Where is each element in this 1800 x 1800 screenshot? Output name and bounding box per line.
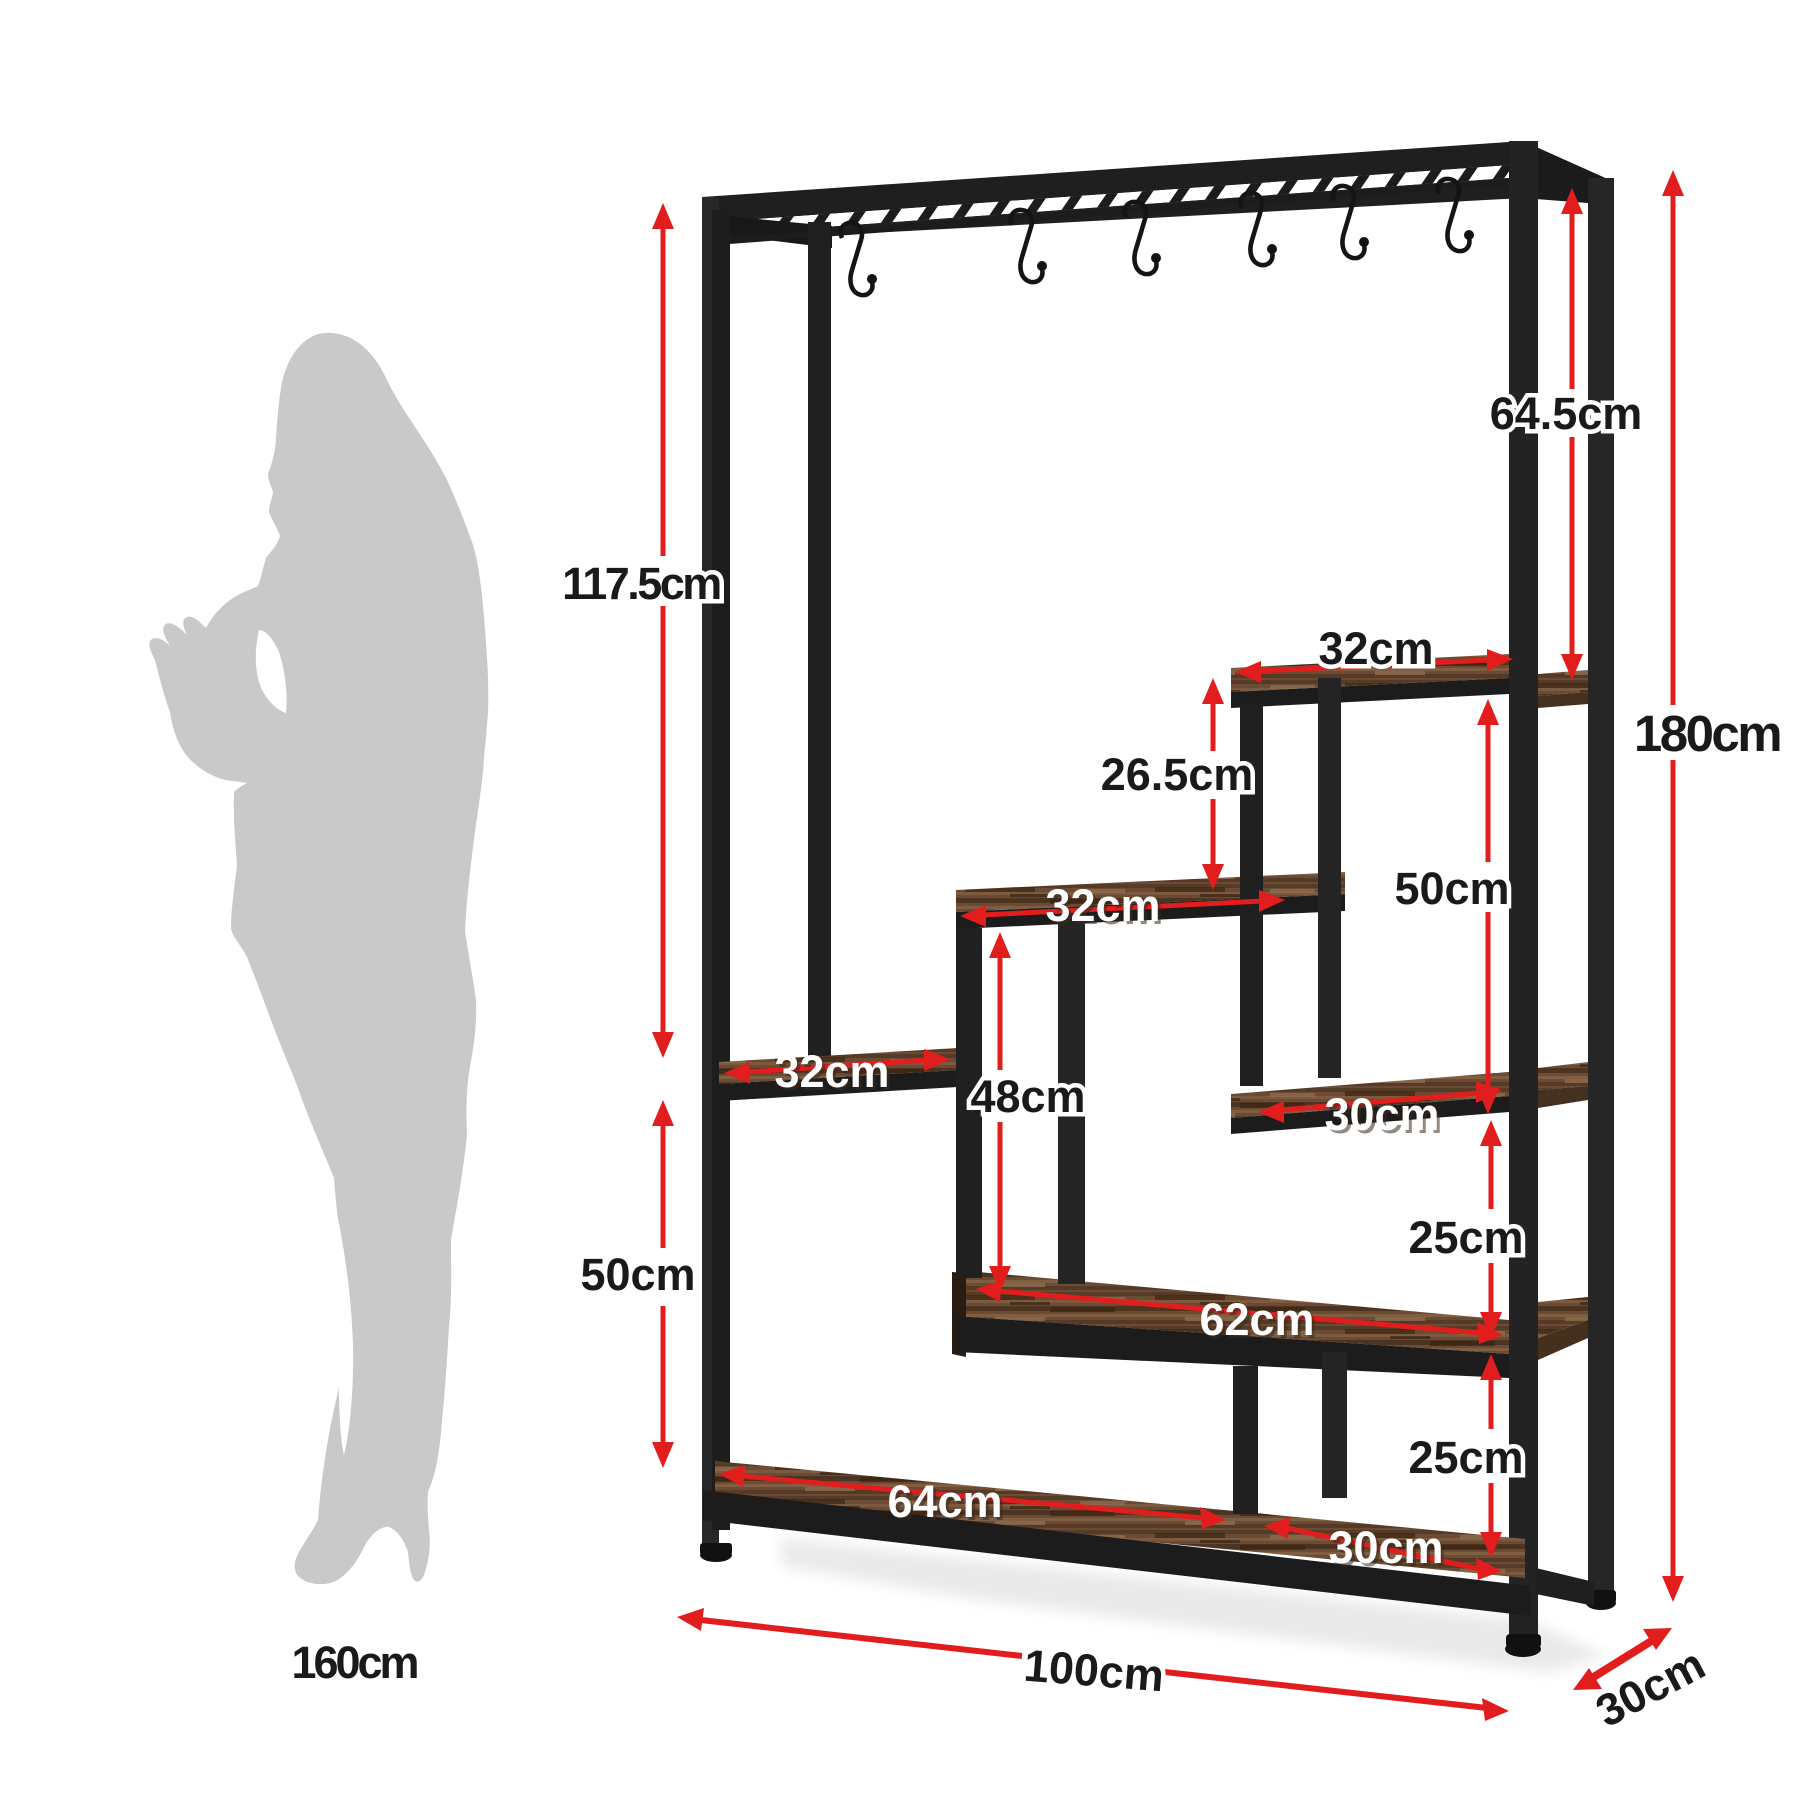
svg-text:30cm: 30cm: [1328, 1522, 1443, 1573]
svg-text:117.5cm: 117.5cm: [562, 558, 720, 609]
svg-text:64cm: 64cm: [887, 1476, 1002, 1527]
svg-text:32cm: 32cm: [774, 1046, 889, 1097]
svg-text:32cm: 32cm: [1318, 623, 1433, 674]
svg-text:30cm: 30cm: [1324, 1089, 1439, 1140]
svg-text:32cm: 32cm: [1045, 880, 1160, 931]
svg-text:62cm: 62cm: [1199, 1294, 1314, 1345]
svg-text:160cm: 160cm: [291, 1637, 417, 1688]
svg-text:48cm: 48cm: [970, 1071, 1085, 1122]
svg-text:26.5cm: 26.5cm: [1101, 749, 1254, 800]
svg-text:180cm: 180cm: [1634, 705, 1780, 762]
svg-text:25cm: 25cm: [1408, 1432, 1523, 1483]
svg-text:64.5cm: 64.5cm: [1490, 388, 1643, 439]
svg-text:25cm: 25cm: [1408, 1212, 1523, 1263]
svg-text:50cm: 50cm: [580, 1249, 695, 1300]
svg-text:50cm: 50cm: [1394, 863, 1509, 914]
